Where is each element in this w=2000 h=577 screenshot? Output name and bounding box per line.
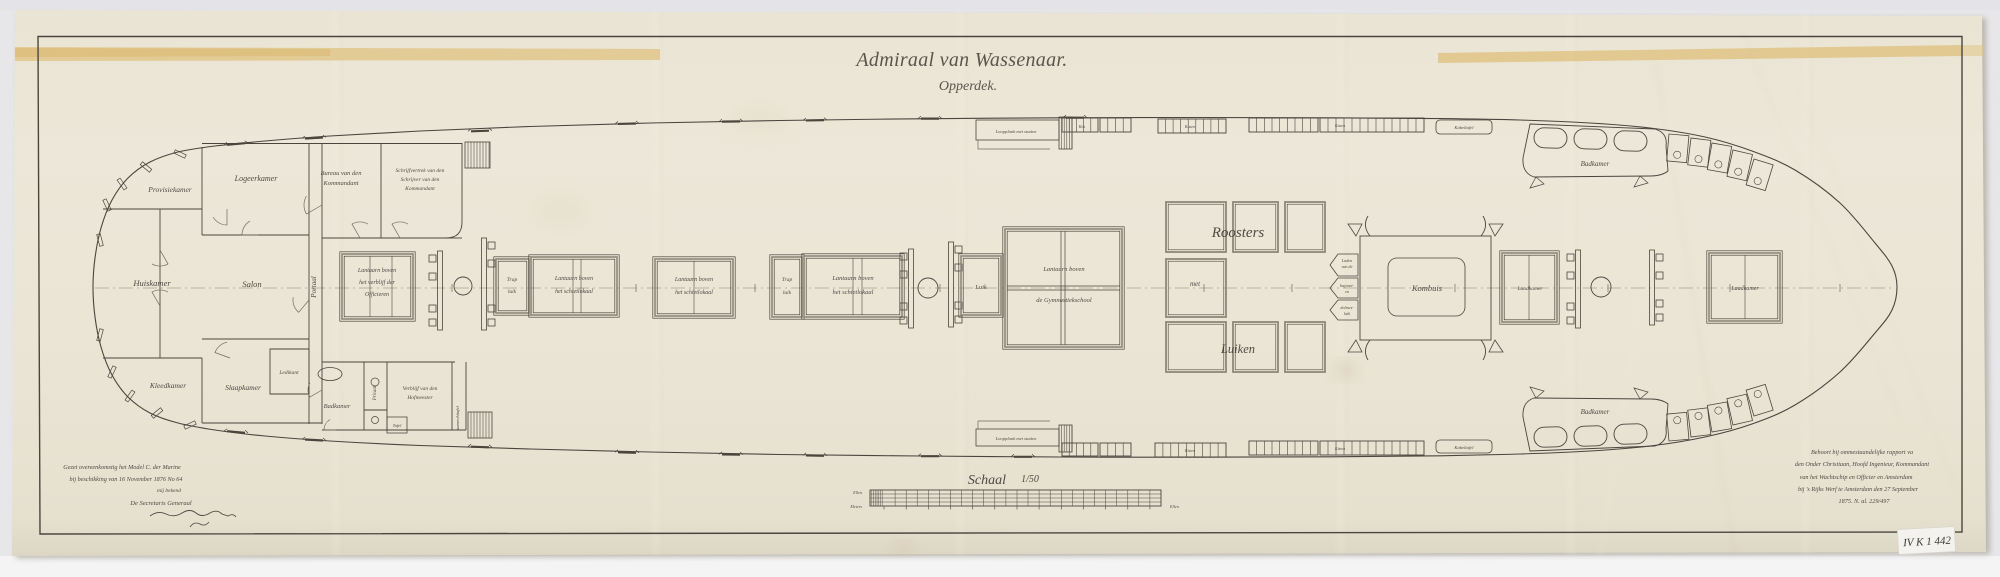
svg-text:Salon: Salon bbox=[242, 279, 261, 289]
svg-text:van het Wachtschip en Officier: van het Wachtschip en Officier en Amster… bbox=[1800, 474, 1913, 481]
svg-text:Laadkamer: Laadkamer bbox=[1730, 286, 1759, 292]
svg-text:Trap: Trap bbox=[782, 277, 793, 283]
svg-text:dolmes-: dolmes- bbox=[1340, 305, 1354, 310]
svg-text:bij beschikking van 16 Novem: bij beschikking van 16 November 1876 No … bbox=[70, 476, 183, 483]
svg-text:Verblijf van den: Verblijf van den bbox=[403, 385, 438, 392]
svg-text:Ellen: Ellen bbox=[852, 490, 862, 495]
svg-text:en: en bbox=[1345, 289, 1349, 294]
svg-text:Kist: Kist bbox=[1078, 124, 1086, 129]
svg-text:Badkamer: Badkamer bbox=[324, 403, 351, 410]
svg-text:1/50: 1/50 bbox=[1021, 474, 1039, 485]
svg-text:het schietlokaal: het schietlokaal bbox=[675, 290, 713, 296]
svg-text:mij bekend: mij bekend bbox=[157, 488, 181, 494]
svg-text:Lantaarn boven: Lantaarn boven bbox=[554, 276, 593, 282]
svg-text:Kisten: Kisten bbox=[1334, 123, 1345, 128]
svg-text:Huiskamer: Huiskamer bbox=[132, 278, 171, 288]
svg-text:Provisiekamer: Provisiekamer bbox=[147, 185, 192, 194]
svg-text:Lantaarn boven: Lantaarn boven bbox=[1042, 266, 1084, 273]
svg-text:Roosters: Roosters bbox=[1211, 225, 1265, 241]
svg-text:bajonet-: bajonet- bbox=[1340, 283, 1355, 288]
svg-text:1875. N. al. 229/497: 1875. N. al. 229/497 bbox=[1839, 498, 1891, 505]
svg-text:Ellen: Ellen bbox=[1169, 504, 1179, 509]
svg-text:Badkamer: Badkamer bbox=[1581, 160, 1610, 168]
svg-text:Kombuis: Kombuis bbox=[1411, 283, 1443, 293]
svg-text:Badkamer: Badkamer bbox=[1581, 408, 1610, 416]
svg-text:Luik: Luik bbox=[974, 284, 987, 291]
svg-text:luik: luik bbox=[1344, 311, 1350, 316]
svg-text:bij 's Rijks Werf te Amsterdam: bij 's Rijks Werf te Amsterdam den 27 Se… bbox=[1798, 486, 1919, 493]
svg-text:Kisten: Kisten bbox=[1184, 448, 1195, 453]
svg-text:Laden: Laden bbox=[1341, 258, 1352, 263]
svg-text:Gezet overeenkomstig het Model: Gezet overeenkomstig het Model C. der Ma… bbox=[63, 464, 181, 471]
svg-text:Trap: Trap bbox=[507, 277, 518, 283]
svg-text:Portaal: Portaal bbox=[310, 276, 318, 298]
svg-text:Schrijfvertrek van den: Schrijfvertrek van den bbox=[396, 167, 445, 174]
svg-text:van de: van de bbox=[1341, 264, 1352, 269]
svg-text:den Onder Christiaan, Hoofd In: den Onder Christiaan, Hoofd Ingenieur, K… bbox=[1795, 461, 1930, 468]
svg-text:met: met bbox=[1190, 280, 1201, 288]
svg-text:Schrijver van den: Schrijver van den bbox=[401, 177, 440, 183]
svg-text:Luiken: Luiken bbox=[1220, 342, 1255, 356]
svg-text:Behoort bij ommestaandelijke r: Behoort bij ommestaandelijke rapport va bbox=[1811, 449, 1913, 456]
svg-text:Kabeltafel: Kabeltafel bbox=[1453, 125, 1474, 130]
svg-text:Kabeltafel: Kabeltafel bbox=[1453, 445, 1474, 450]
svg-text:Hofmeester: Hofmeester bbox=[406, 394, 433, 401]
svg-text:het schietlokaal: het schietlokaal bbox=[555, 289, 593, 295]
svg-text:de Gymnastiekschool: de Gymnastiekschool bbox=[1036, 297, 1092, 304]
svg-text:Loopplank met stutten: Loopplank met stutten bbox=[995, 436, 1038, 441]
svg-text:Kommandant: Kommandant bbox=[404, 186, 435, 192]
svg-text:Lantaarn boven: Lantaarn boven bbox=[674, 277, 713, 283]
svg-text:Schaal: Schaal bbox=[968, 473, 1006, 488]
svg-text:het schietlokaal: het schietlokaal bbox=[833, 289, 874, 296]
svg-text:het verblijf der: het verblijf der bbox=[359, 279, 395, 286]
svg-text:Slaapkamer: Slaapkamer bbox=[225, 383, 261, 392]
svg-text:Tafel: Tafel bbox=[393, 423, 403, 428]
svg-text:aanrechttafel: aanrechttafel bbox=[455, 405, 460, 430]
svg-text:Logeerkamer: Logeerkamer bbox=[234, 174, 279, 183]
svg-text:Meters: Meters bbox=[849, 504, 862, 509]
svg-text:Opperdek.: Opperdek. bbox=[939, 79, 997, 94]
svg-text:Loopplank met stutten: Loopplank met stutten bbox=[995, 129, 1038, 134]
svg-text:Privaat: Privaat bbox=[373, 385, 378, 401]
svg-text:De Secretaris Generaal: De Secretaris Generaal bbox=[129, 500, 192, 507]
svg-text:Kisten: Kisten bbox=[1184, 124, 1195, 129]
svg-text:Laadkamer: Laadkamer bbox=[1516, 286, 1543, 292]
svg-text:Bureau van den: Bureau van den bbox=[321, 170, 362, 177]
svg-text:Lantaarn boven: Lantaarn boven bbox=[831, 275, 873, 282]
svg-text:Kommandant: Kommandant bbox=[322, 180, 358, 187]
svg-text:Ledikant: Ledikant bbox=[278, 370, 299, 376]
svg-text:Kisten: Kisten bbox=[1334, 446, 1345, 451]
svg-text:Admiraal van Wassenaar.: Admiraal van Wassenaar. bbox=[854, 49, 1067, 71]
svg-text:luik: luik bbox=[783, 290, 792, 296]
svg-text:Lantaarn boven: Lantaarn boven bbox=[357, 268, 396, 274]
svg-text:Officieren: Officieren bbox=[365, 291, 389, 298]
svg-text:Kleedkamer: Kleedkamer bbox=[149, 381, 186, 390]
svg-text:luik: luik bbox=[508, 289, 517, 295]
